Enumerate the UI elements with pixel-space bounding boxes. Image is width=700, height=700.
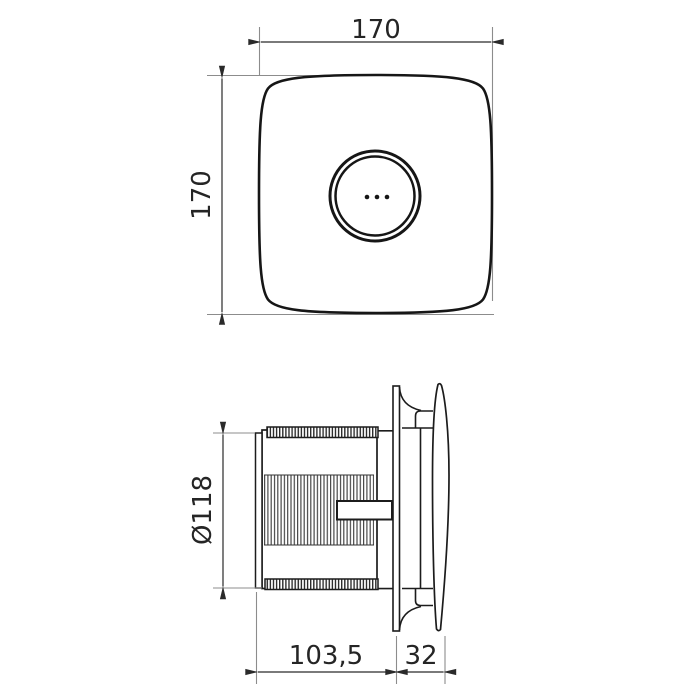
clip-top xyxy=(402,411,433,428)
dimension-label-front-height: 170 xyxy=(187,170,217,220)
dimension-label-duct-diameter: Ø118 xyxy=(188,475,218,545)
mounting-plate xyxy=(393,386,400,631)
fan-cover-outline xyxy=(259,75,492,313)
hub-dot xyxy=(385,195,390,200)
drawing-canvas: 170 170 xyxy=(0,0,700,700)
plate-top-curve xyxy=(400,387,422,411)
front-cover-profile xyxy=(433,384,450,631)
dimension-label-cover-depth: 32 xyxy=(404,641,437,671)
hub-dots xyxy=(365,195,390,200)
ribbed-band-top xyxy=(267,427,378,438)
duct-back-plate xyxy=(256,433,263,588)
hub-dot xyxy=(365,195,370,200)
hub-dot xyxy=(375,195,380,200)
connector-tab xyxy=(337,501,392,520)
dimension-label-body-depth: 103,5 xyxy=(289,641,363,671)
fan-front-view: 170 170 xyxy=(187,15,494,315)
technical-drawing-svg: 170 170 xyxy=(0,0,700,700)
fan-side-view: Ø118 103,5 32 xyxy=(188,384,449,684)
dimension-label-front-width: 170 xyxy=(351,15,401,45)
plate-bottom-curve xyxy=(400,607,422,631)
clip-bottom xyxy=(402,589,433,606)
ribbed-band-bottom xyxy=(265,579,378,590)
